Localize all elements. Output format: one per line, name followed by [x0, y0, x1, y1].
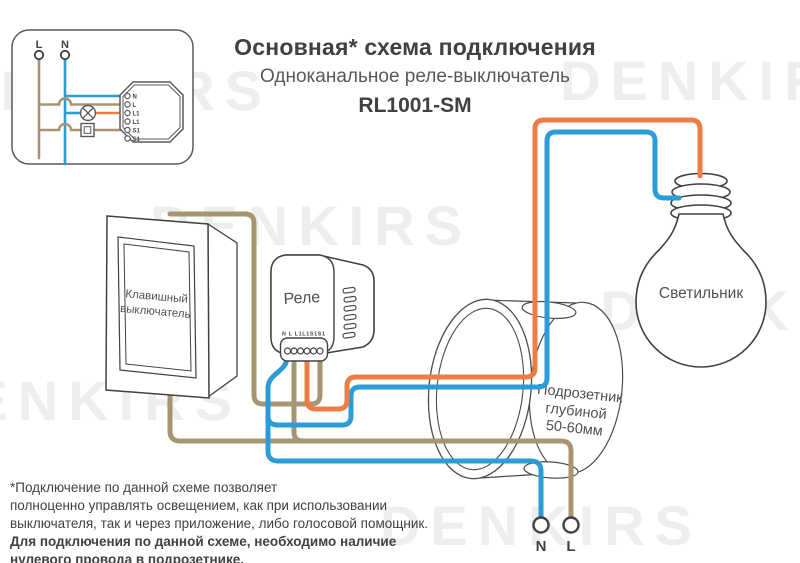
mains-l-terminal	[564, 518, 579, 533]
relay-terminal	[291, 348, 297, 354]
light-bulb: Светильник	[636, 174, 766, 368]
relay-terminal	[298, 348, 304, 354]
lamp-symbol-icon	[81, 106, 96, 121]
inset-terminal-label: S1	[133, 129, 141, 135]
mains-n-terminal	[534, 518, 549, 533]
footnote: *Подключение по данной схеме позволяет п…	[10, 479, 428, 563]
switch-symbol-icon	[81, 124, 94, 137]
switch-back-box	[208, 224, 237, 397]
footnote-bold1: Для подключения по данной схеме, необход…	[10, 533, 428, 551]
footnote-line2: полноценно управлять освещением, как при…	[10, 497, 428, 515]
relay-terminal-block: N L L1L1S1S1	[281, 332, 328, 362]
inset-n-label: N	[61, 39, 69, 51]
inset-relay-terminal	[125, 110, 130, 115]
relay-terminal	[285, 348, 291, 354]
model-name: RL1001-SM	[358, 94, 471, 118]
inset-l-terminal	[35, 51, 43, 59]
inset-relay-terminal	[125, 127, 130, 132]
relay-terminal	[311, 348, 317, 354]
relay-label: Реле	[283, 289, 321, 308]
inset-terminal-label: L1	[133, 120, 141, 126]
footnote-bold2: нулевого провода в подрозетнике.	[10, 551, 428, 563]
wire-relay-l	[294, 357, 303, 441]
page-title: Основная* схема подключения	[234, 34, 596, 61]
relay-terminals-label: N L L1L1S1S1	[282, 332, 325, 338]
bulb-label: Светильник	[659, 285, 743, 302]
inset-relay-terminal	[125, 136, 130, 141]
inset-relay: N L L1 L1 S1 S1	[120, 82, 183, 143]
inset-terminal-label: L1	[133, 112, 141, 118]
relay-terminal	[304, 348, 310, 354]
inset-n-terminal	[61, 51, 69, 59]
inset-relay-terminal	[125, 93, 130, 98]
inset-terminal-label: L	[133, 103, 137, 109]
footnote-line3: выключателя, так и через приложение, либ…	[10, 515, 428, 533]
wall-switch: Клавишный выключатель	[106, 216, 237, 398]
relay-module: Реле N L L1L1S1S1	[271, 255, 374, 361]
mains-n-label: N	[536, 538, 547, 555]
inset-terminal-label: N	[133, 95, 137, 101]
wiring-diagram-page: DENKIRS DENKIRS DENKIRS DENKIRS DENKIRS …	[0, 0, 800, 563]
relay-terminal	[317, 348, 323, 354]
inset-schematic: L N	[12, 30, 193, 164]
inset-relay-terminal	[125, 102, 130, 107]
footnote-line1: *Подключение по данной схеме позволяет	[10, 479, 428, 497]
inset-terminal-label: S1	[133, 137, 141, 143]
watermark-text: DENKIRS	[560, 49, 800, 112]
inset-l-label: L	[36, 39, 43, 51]
page-subtitle: Одноканальное реле-выключатель	[260, 66, 570, 88]
mains-l-label: L	[566, 538, 575, 555]
inset-relay-terminal	[125, 119, 130, 124]
